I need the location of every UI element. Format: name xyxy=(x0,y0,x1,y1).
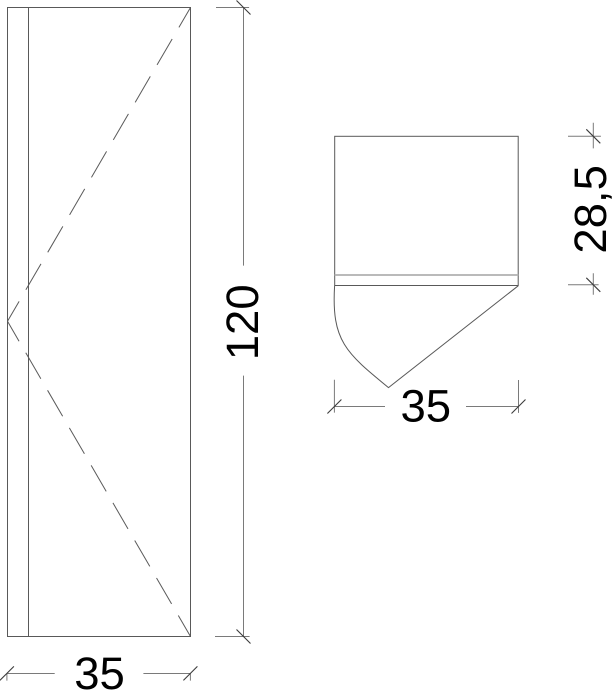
svg-text:120: 120 xyxy=(217,284,268,360)
svg-text:28,5: 28,5 xyxy=(565,165,613,254)
svg-text:35: 35 xyxy=(74,648,125,690)
svg-text:35: 35 xyxy=(400,381,451,432)
